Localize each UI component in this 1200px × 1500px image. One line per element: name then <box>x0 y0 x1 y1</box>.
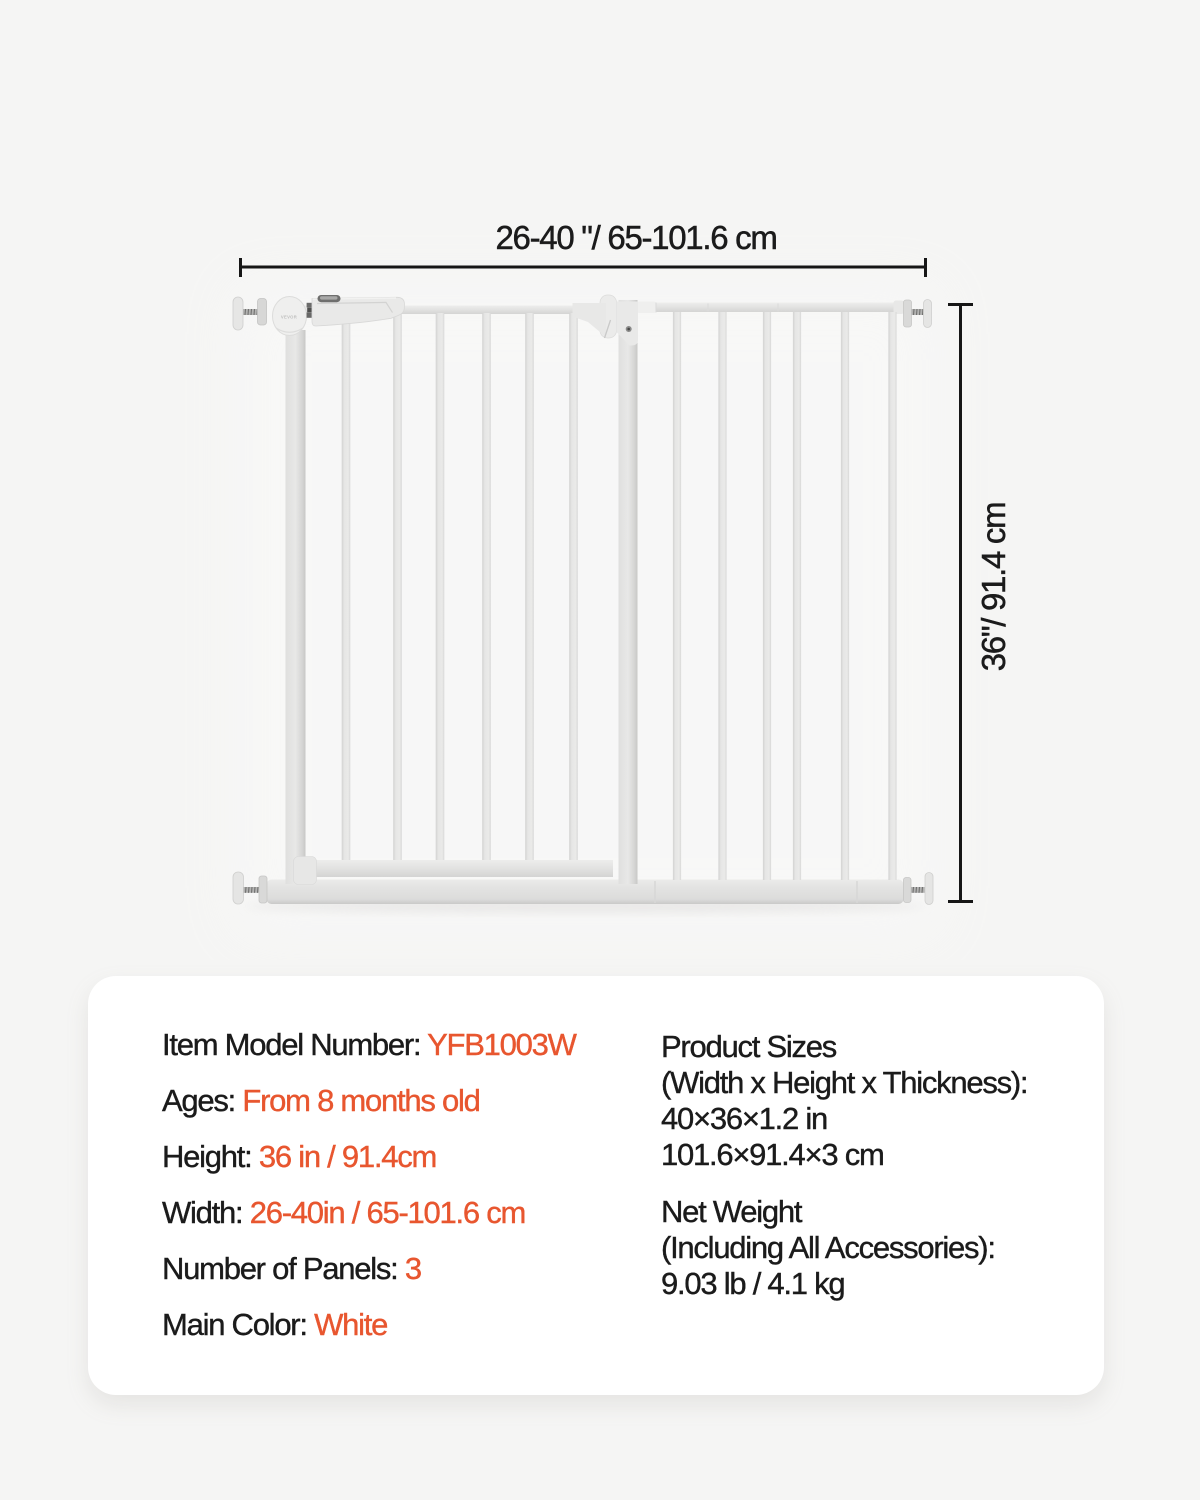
svg-text:VEVOR: VEVOR <box>281 315 297 320</box>
